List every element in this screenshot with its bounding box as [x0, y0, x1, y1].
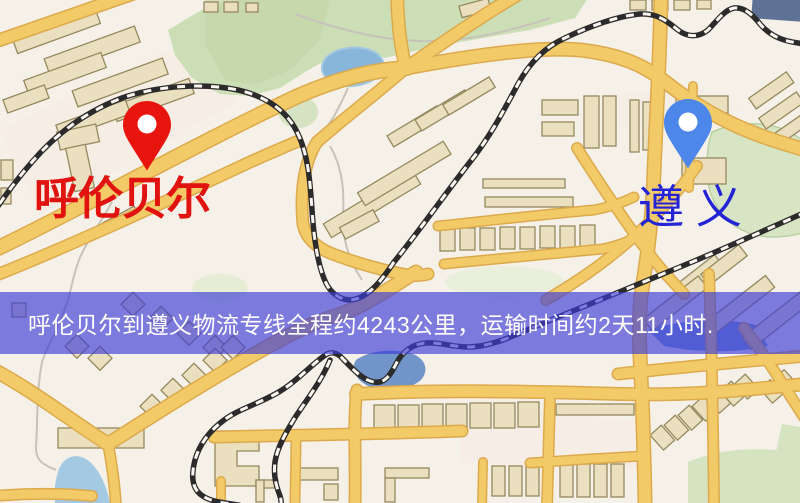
map-view: 呼伦贝尔到遵义物流专线全程约4243公里，运输时间约2天11小时. 呼伦贝尔 遵… — [0, 0, 800, 503]
destination-city-label: 遵义 — [638, 184, 754, 230]
destination-pin-icon — [663, 98, 713, 170]
origin-pin-icon — [122, 100, 172, 172]
map-canvas — [0, 0, 800, 503]
origin-city-label: 呼伦贝尔 — [34, 176, 210, 221]
route-summary-text: 呼伦贝尔到遵义物流专线全程约4243公里，运输时间约2天11小时. — [28, 306, 714, 340]
route-summary-banner: 呼伦贝尔到遵义物流专线全程约4243公里，运输时间约2天11小时. — [0, 292, 800, 354]
